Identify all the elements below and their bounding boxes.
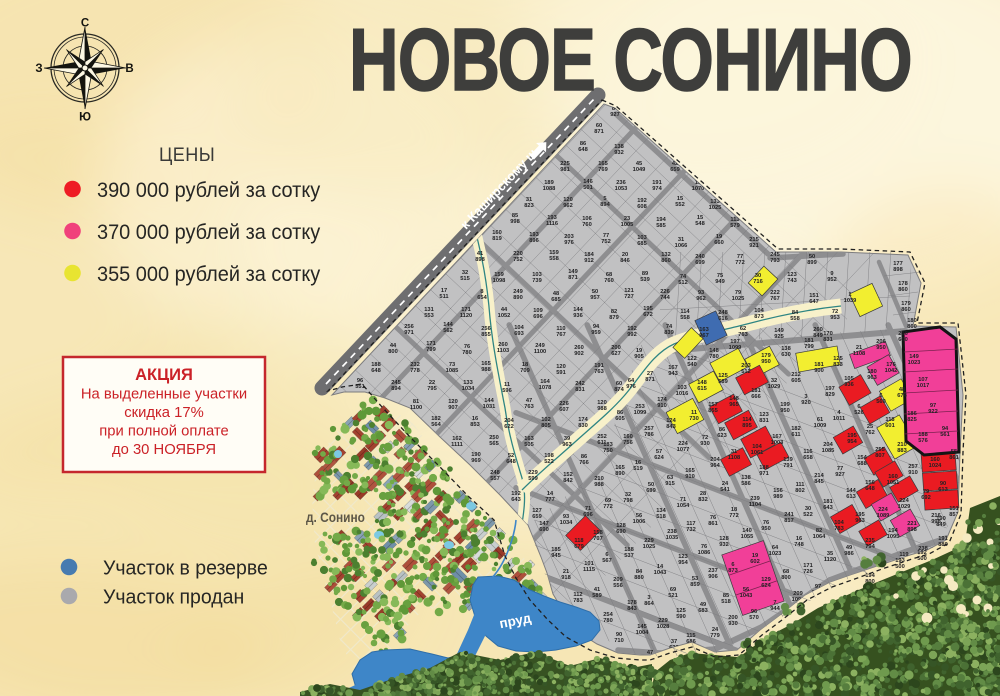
svg-text:110767: 110767	[556, 326, 566, 338]
svg-text:183750: 183750	[603, 442, 613, 454]
svg-text:138630: 138630	[781, 346, 791, 358]
svg-text:220752: 220752	[513, 251, 523, 263]
svg-text:188648: 188648	[371, 362, 381, 374]
svg-text:1621111: 1621111	[451, 436, 463, 448]
svg-text:160756: 160756	[623, 434, 633, 446]
svg-text:192643: 192643	[511, 491, 521, 503]
svg-text:192992: 192992	[627, 326, 637, 338]
svg-text:2381035: 2381035	[666, 529, 679, 541]
svg-text:165910: 165910	[685, 468, 695, 480]
svg-text:188537: 188537	[624, 547, 634, 559]
svg-text:1041061: 1041061	[751, 444, 764, 456]
svg-text:122540: 122540	[687, 356, 697, 368]
svg-text:156648: 156648	[865, 480, 875, 492]
svg-text:195954: 195954	[847, 433, 857, 445]
svg-text:199950: 199950	[780, 402, 790, 414]
svg-text:2601103: 2601103	[497, 342, 509, 354]
svg-text:154688: 154688	[857, 455, 867, 467]
svg-text:146501: 146501	[583, 179, 593, 191]
svg-text:179950: 179950	[761, 353, 771, 365]
svg-text:222767: 222767	[770, 290, 780, 302]
svg-text:240699: 240699	[695, 254, 705, 266]
svg-text:НОВОЕ СОНИНО: НОВОЕ СОНИНО	[349, 11, 912, 109]
svg-text:204622: 204622	[504, 418, 514, 430]
svg-text:245894: 245894	[391, 380, 401, 392]
svg-text:111802: 111802	[795, 482, 805, 494]
svg-text:144562: 144562	[443, 322, 453, 334]
svg-text:156989: 156989	[773, 488, 783, 500]
svg-text:1071017: 1071017	[917, 377, 930, 389]
svg-text:118679: 118679	[574, 538, 584, 550]
svg-text:120591: 120591	[556, 364, 566, 376]
svg-text:138586: 138586	[741, 475, 751, 487]
svg-text:138932: 138932	[614, 144, 624, 156]
svg-text:181643: 181643	[823, 499, 833, 511]
svg-text:242831: 242831	[575, 381, 585, 393]
svg-text:120988: 120988	[597, 400, 607, 412]
svg-text:105936: 105936	[844, 376, 854, 388]
svg-text:260849: 260849	[813, 327, 823, 339]
svg-text:159558: 159558	[549, 250, 559, 262]
svg-text:2041085: 2041085	[822, 442, 835, 454]
svg-text:102805: 102805	[541, 417, 551, 429]
svg-text:2291025: 2291025	[643, 538, 656, 550]
svg-text:181900: 181900	[814, 362, 824, 374]
svg-text:112783: 112783	[573, 592, 583, 604]
svg-text:192608: 192608	[637, 198, 647, 210]
svg-text:241817: 241817	[784, 512, 794, 524]
svg-text:232778: 232778	[410, 362, 420, 374]
svg-text:106760: 106760	[582, 216, 592, 228]
svg-text:1671003: 1671003	[771, 434, 784, 446]
svg-text:139791: 139791	[783, 457, 793, 469]
svg-text:Участок в резерве: Участок в резерве	[103, 557, 268, 580]
svg-text:163505: 163505	[524, 436, 534, 448]
svg-text:125833: 125833	[833, 356, 843, 368]
svg-text:114895: 114895	[742, 417, 752, 429]
svg-text:123743: 123743	[787, 272, 797, 284]
svg-text:121727: 121727	[624, 288, 634, 300]
svg-text:256855: 256855	[481, 326, 491, 338]
svg-text:2361053: 2361053	[615, 180, 628, 192]
svg-text:181666: 181666	[751, 388, 761, 400]
svg-text:210883: 210883	[897, 442, 907, 454]
svg-text:193896: 193896	[529, 232, 539, 244]
svg-text:249890: 249890	[513, 289, 523, 301]
svg-text:193500: 193500	[895, 558, 905, 570]
svg-text:127659: 127659	[532, 508, 542, 520]
svg-text:257910: 257910	[908, 464, 918, 476]
svg-text:195963: 195963	[855, 512, 865, 524]
svg-text:ЦЕНЫ: ЦЕНЫ	[159, 144, 215, 166]
svg-text:174830: 174830	[578, 417, 588, 429]
svg-text:194585: 194585	[656, 217, 666, 229]
svg-text:129624: 129624	[761, 577, 771, 589]
svg-text:117732: 117732	[686, 521, 696, 533]
svg-text:1941095: 1941095	[887, 528, 900, 540]
svg-text:1931116: 1931116	[546, 215, 558, 227]
svg-text:165988: 165988	[481, 361, 491, 373]
svg-text:2241089: 2241089	[877, 507, 890, 519]
svg-text:1491023: 1491023	[908, 354, 921, 366]
svg-text:229599: 229599	[528, 470, 538, 482]
svg-text:191763: 191763	[594, 363, 604, 375]
svg-text:125590: 125590	[676, 608, 686, 620]
svg-text:103685: 103685	[637, 235, 647, 247]
svg-text:197829: 197829	[825, 386, 835, 398]
svg-text:250565: 250565	[489, 435, 499, 447]
svg-text:256971: 256971	[404, 324, 414, 336]
svg-text:118601: 118601	[885, 417, 895, 429]
svg-text:188971: 188971	[759, 465, 769, 477]
svg-text:216660: 216660	[898, 331, 908, 343]
svg-text:170831: 170831	[823, 331, 833, 343]
svg-text:180860: 180860	[907, 318, 917, 330]
svg-text:2241029: 2241029	[898, 498, 911, 510]
svg-text:1441031: 1441031	[483, 398, 496, 410]
svg-text:221898: 221898	[907, 521, 917, 533]
svg-text:1011115: 1011115	[583, 561, 595, 573]
svg-text:2291028: 2291028	[657, 618, 670, 630]
svg-text:191880: 191880	[938, 536, 948, 548]
svg-text:174910: 174910	[657, 397, 667, 409]
svg-text:132860: 132860	[661, 252, 671, 264]
svg-text:1031016: 1031016	[676, 385, 689, 397]
svg-text:В: В	[125, 63, 133, 75]
svg-text:214845: 214845	[814, 473, 824, 485]
svg-text:245793: 245793	[770, 252, 780, 264]
svg-text:177898: 177898	[893, 261, 903, 273]
svg-text:257786: 257786	[644, 426, 654, 438]
svg-text:д. Сонино: д. Сонино	[306, 509, 365, 525]
svg-text:165769: 165769	[598, 161, 608, 173]
svg-text:215921: 215921	[749, 237, 759, 249]
svg-text:АКЦИЯ: АКЦИЯ	[135, 366, 193, 384]
svg-text:109696: 109696	[533, 308, 543, 320]
svg-text:209556: 209556	[613, 577, 623, 589]
svg-text:104873: 104873	[754, 308, 764, 320]
svg-text:254780: 254780	[603, 612, 613, 624]
svg-text:200930: 200930	[728, 615, 738, 627]
svg-text:206950: 206950	[876, 339, 886, 351]
svg-text:125589: 125589	[718, 373, 728, 385]
svg-text:190969: 190969	[471, 452, 481, 464]
svg-text:179860: 179860	[901, 301, 911, 313]
svg-text:195672: 195672	[643, 306, 653, 318]
svg-text:171726: 171726	[803, 563, 813, 575]
svg-text:На выделенные участки: На выделенные участки	[81, 387, 247, 403]
svg-text:1971099: 1971099	[729, 339, 742, 351]
svg-text:104783: 104783	[834, 520, 844, 532]
svg-text:1401055: 1401055	[741, 528, 754, 540]
svg-text:225981: 225981	[560, 161, 570, 173]
svg-text:226744: 226744	[660, 289, 670, 301]
svg-text:167943: 167943	[668, 365, 678, 377]
svg-text:200627: 200627	[611, 345, 621, 357]
svg-text:З: З	[35, 63, 42, 75]
svg-text:178860: 178860	[898, 281, 908, 293]
svg-text:160819: 160819	[492, 230, 502, 242]
svg-text:182564: 182564	[431, 416, 441, 428]
svg-text:148965: 148965	[729, 396, 739, 408]
svg-text:212605: 212605	[791, 372, 801, 384]
svg-text:1591098: 1591098	[493, 272, 506, 284]
svg-text:2241077: 2241077	[677, 441, 690, 453]
svg-text:151647: 151647	[809, 293, 819, 305]
svg-text:1641078: 1641078	[539, 379, 552, 391]
svg-text:Участок продан: Участок продан	[103, 586, 244, 609]
svg-text:210988: 210988	[594, 476, 604, 488]
svg-text:149871: 149871	[568, 269, 578, 281]
svg-text:116658: 116658	[803, 449, 813, 461]
svg-text:237906: 237906	[708, 568, 718, 580]
svg-text:171799: 171799	[426, 341, 436, 353]
svg-text:203976: 203976	[564, 234, 574, 246]
svg-text:114558: 114558	[680, 309, 690, 321]
svg-text:1891088: 1891088	[543, 180, 556, 192]
svg-text:185945: 185945	[551, 547, 561, 559]
svg-text:103739: 103739	[532, 272, 542, 284]
svg-text:128932: 128932	[719, 536, 729, 548]
svg-text:120907: 120907	[448, 399, 458, 411]
svg-text:128690: 128690	[616, 523, 626, 535]
svg-text:204964: 204964	[710, 457, 720, 469]
svg-text:163967: 163967	[699, 327, 709, 339]
svg-text:181799: 181799	[804, 338, 814, 350]
svg-text:113579: 113579	[730, 217, 740, 229]
svg-text:С: С	[81, 18, 89, 30]
svg-text:192500: 192500	[917, 550, 927, 562]
svg-text:1711120: 1711120	[460, 307, 472, 319]
svg-text:144936: 144936	[573, 307, 583, 319]
svg-text:260902: 260902	[574, 345, 584, 357]
svg-text:188576: 188576	[918, 432, 928, 444]
svg-text:226607: 226607	[559, 401, 569, 413]
svg-text:152842: 152842	[563, 472, 573, 484]
svg-text:148615: 148615	[697, 380, 707, 392]
svg-text:157855: 157855	[708, 402, 718, 414]
svg-text:2531099: 2531099	[634, 404, 647, 416]
svg-text:131553: 131553	[424, 307, 434, 319]
svg-text:до 30 НОЯБРЯ: до 30 НОЯБРЯ	[112, 442, 216, 458]
svg-text:370 000 рублей за сотку: 370 000 рублей за сотку	[97, 221, 321, 245]
svg-text:198522: 198522	[544, 453, 554, 465]
svg-text:390 000 рублей за сотку: 390 000 рублей за сотку	[97, 179, 321, 203]
svg-text:165890: 165890	[615, 465, 625, 477]
svg-text:2491100: 2491100	[534, 343, 546, 355]
svg-text:191974: 191974	[652, 180, 662, 192]
svg-text:235794: 235794	[865, 538, 875, 550]
svg-text:147690: 147690	[539, 521, 549, 533]
svg-text:355 000 рублей за сотку: 355 000 рублей за сотку	[97, 263, 321, 287]
svg-text:180963: 180963	[867, 369, 877, 381]
svg-text:148780: 148780	[709, 348, 719, 360]
svg-text:149925: 149925	[774, 328, 784, 340]
svg-text:248557: 248557	[490, 470, 500, 482]
svg-text:134518: 134518	[656, 508, 666, 520]
svg-text:120962: 120962	[563, 197, 573, 209]
svg-text:184912: 184912	[584, 252, 594, 264]
svg-text:182611: 182611	[791, 426, 801, 438]
svg-text:124843: 124843	[666, 418, 676, 430]
svg-text:186825: 186825	[907, 411, 917, 423]
svg-text:1761042: 1761042	[885, 362, 898, 374]
svg-text:1601051: 1601051	[887, 474, 900, 486]
svg-text:при полной оплате: при полной оплате	[99, 424, 229, 440]
svg-text:144613: 144613	[846, 488, 856, 500]
svg-text:178843: 178843	[627, 600, 637, 612]
svg-text:158707: 158707	[593, 530, 603, 542]
svg-text:255807: 255807	[875, 447, 885, 459]
svg-text:Ю: Ю	[79, 112, 91, 124]
svg-text:123954: 123954	[678, 554, 688, 566]
svg-text:203512: 203512	[741, 363, 751, 375]
svg-text:скидка 17%: скидка 17%	[124, 405, 204, 421]
svg-text:190849: 190849	[936, 516, 946, 528]
svg-text:123831: 123831	[759, 412, 769, 424]
svg-text:248616: 248616	[718, 310, 728, 322]
svg-text:104693: 104693	[514, 325, 524, 337]
